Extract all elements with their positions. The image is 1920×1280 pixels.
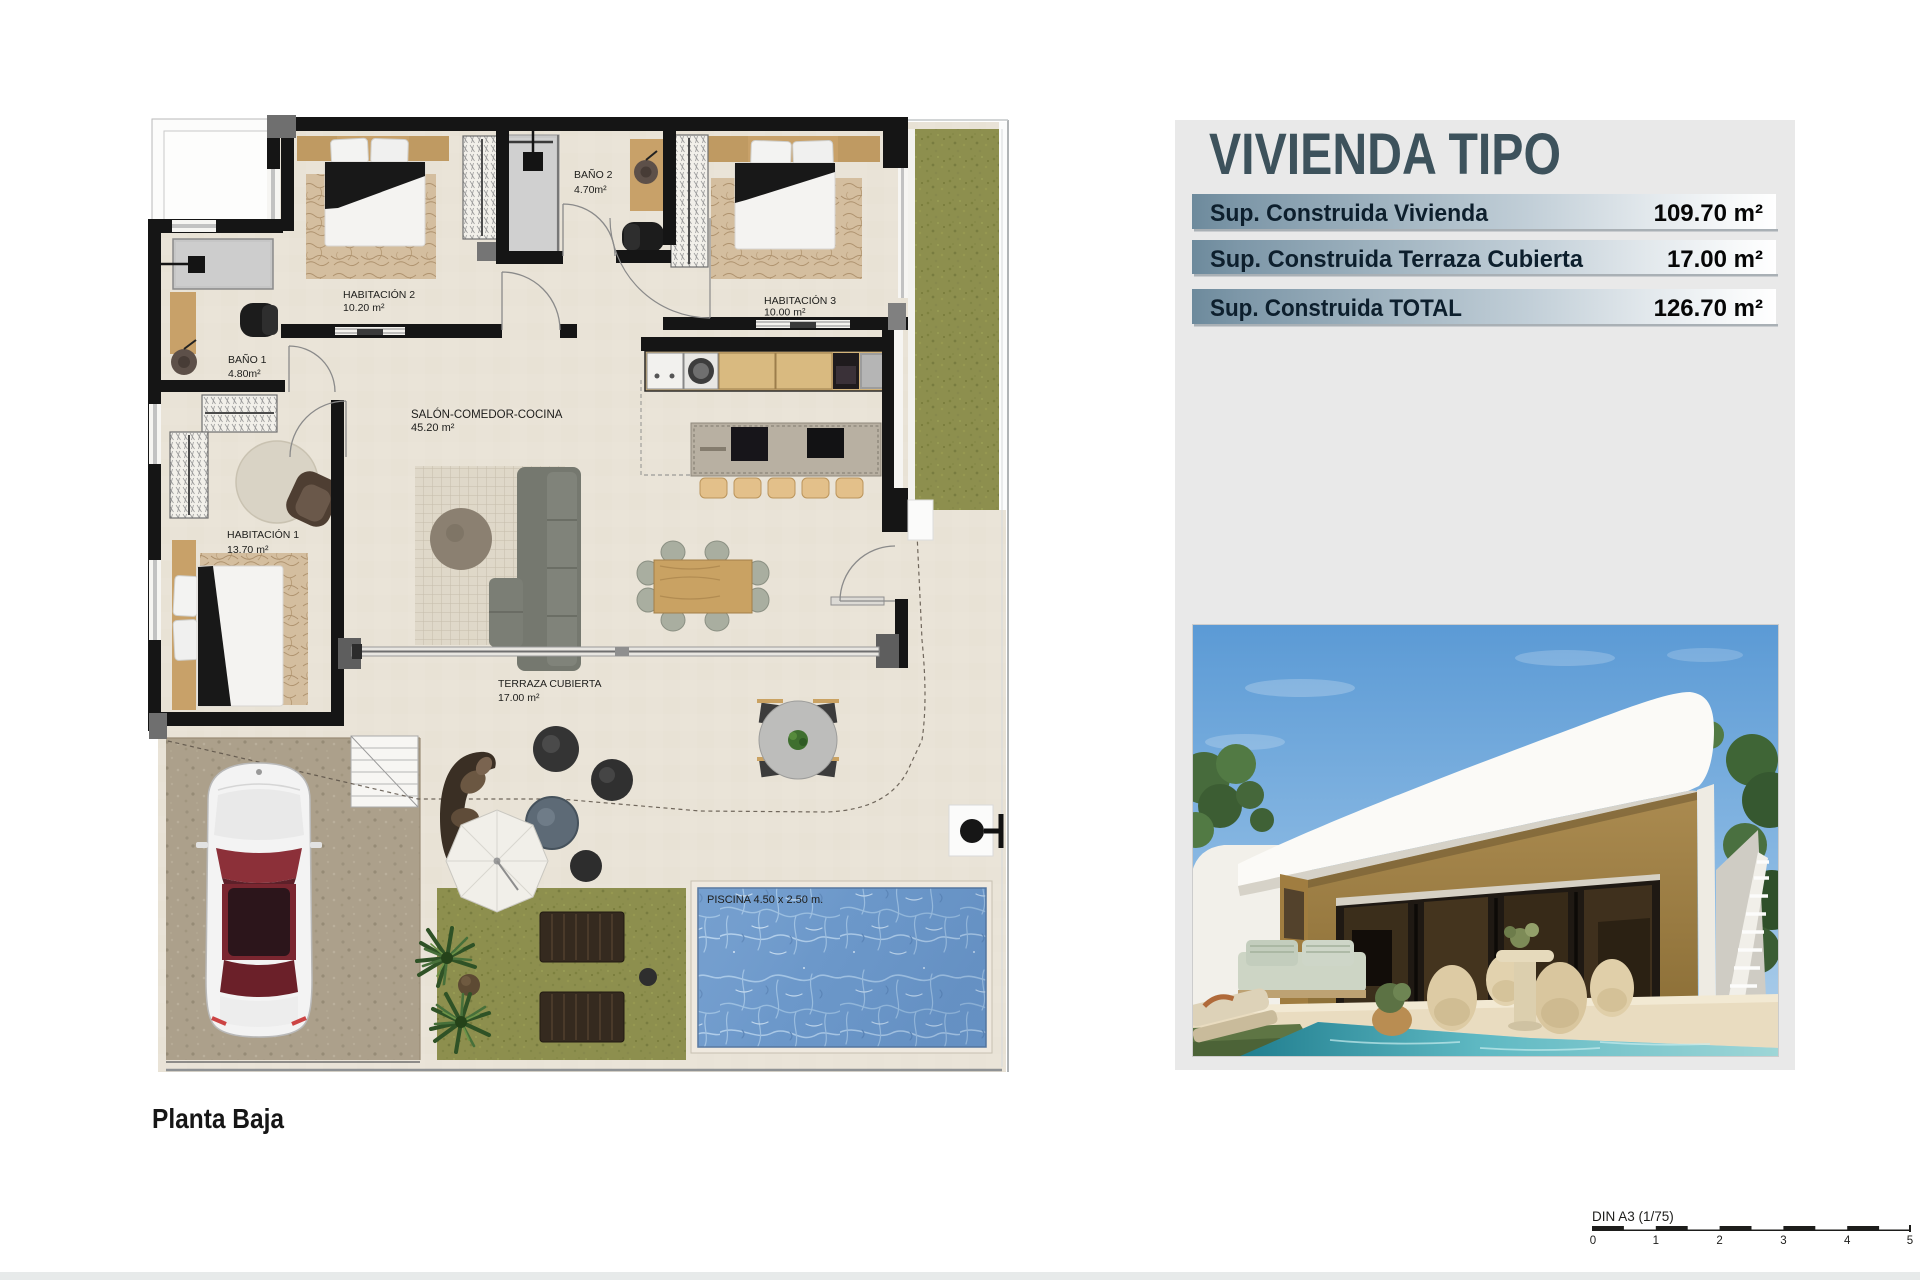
- svg-text:109.70 m²: 109.70 m²: [1654, 200, 1763, 227]
- svg-text:3: 3: [1780, 1235, 1786, 1247]
- svg-text:PISCINA 4.50 x 2.50 m.: PISCINA 4.50 x 2.50 m.: [707, 894, 823, 906]
- svg-text:Sup. Construida TOTAL: Sup. Construida TOTAL: [1210, 295, 1462, 322]
- svg-text:0: 0: [1590, 1235, 1596, 1247]
- svg-text:10.20 m²: 10.20 m²: [343, 302, 385, 314]
- svg-text:4.70m²: 4.70m²: [574, 184, 607, 196]
- svg-text:TERRAZA CUBIERTA: TERRAZA CUBIERTA: [498, 678, 601, 690]
- svg-text:4.80m²: 4.80m²: [228, 368, 261, 380]
- svg-text:10.00 m²: 10.00 m²: [764, 307, 806, 319]
- svg-text:126.70 m²: 126.70 m²: [1654, 295, 1763, 322]
- svg-text:Sup. Construida Vivienda: Sup. Construida Vivienda: [1210, 200, 1489, 227]
- svg-text:13.70 m²: 13.70 m²: [227, 544, 269, 556]
- svg-text:17.00 m²: 17.00 m²: [498, 692, 540, 704]
- svg-text:DIN A3 (1/75): DIN A3 (1/75): [1592, 1209, 1674, 1224]
- svg-text:Planta Baja: Planta Baja: [152, 1103, 284, 1134]
- svg-text:5: 5: [1907, 1235, 1913, 1247]
- svg-text:45.20 m²: 45.20 m²: [411, 422, 455, 434]
- svg-text:HABITACIÓN 2: HABITACIÓN 2: [343, 288, 415, 301]
- svg-text:BAÑO 1: BAÑO 1: [228, 353, 267, 366]
- svg-text:17.00 m²: 17.00 m²: [1667, 246, 1763, 273]
- svg-text:4: 4: [1844, 1235, 1851, 1247]
- svg-text:SALÓN-COMEDOR-COCINA: SALÓN-COMEDOR-COCINA: [411, 408, 563, 421]
- svg-text:1: 1: [1653, 1235, 1659, 1247]
- svg-text:BAÑO 2: BAÑO 2: [574, 168, 613, 181]
- svg-text:Sup. Construida Terraza Cubier: Sup. Construida Terraza Cubierta: [1210, 246, 1584, 273]
- svg-text:HABITACIÓN 1: HABITACIÓN 1: [227, 528, 299, 541]
- svg-text:VIVIENDA TIPO: VIVIENDA TIPO: [1209, 122, 1561, 187]
- svg-text:HABITACIÓN 3: HABITACIÓN 3: [764, 294, 836, 307]
- svg-text:2: 2: [1716, 1235, 1722, 1247]
